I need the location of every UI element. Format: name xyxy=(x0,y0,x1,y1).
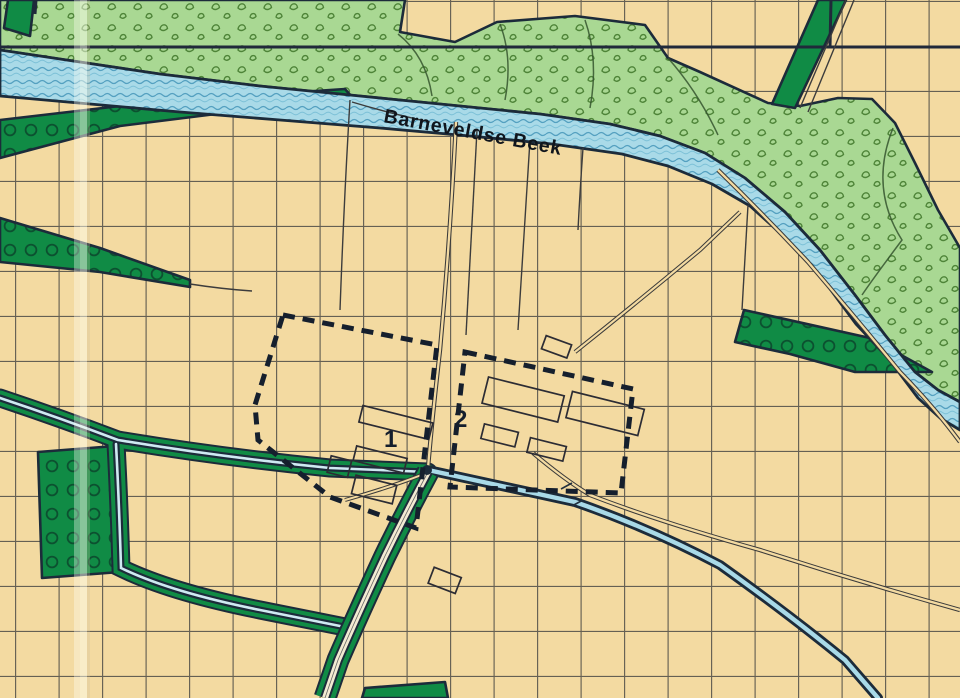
fold-crease xyxy=(74,0,90,698)
orchard-corner-strip xyxy=(4,0,34,36)
site-marker-2: 2 xyxy=(454,406,467,433)
map-canvas: Barneveldse Beek 1 2 xyxy=(0,0,960,698)
site-marker-1: 1 xyxy=(384,426,397,453)
cadastral-map: Barneveldse Beek 1 2 xyxy=(0,0,960,698)
